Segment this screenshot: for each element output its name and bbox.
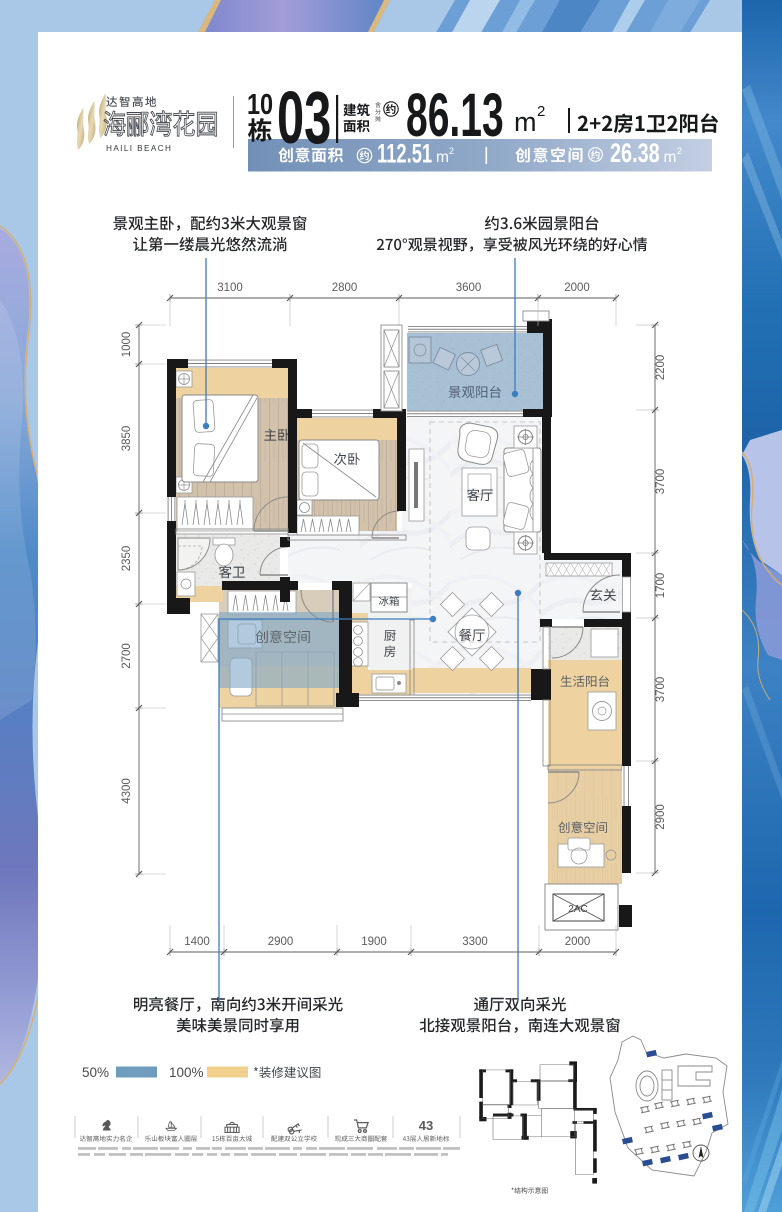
svg-text:2200: 2200 (655, 355, 667, 381)
svg-text:3700: 3700 (655, 469, 667, 495)
svg-text:03: 03 (277, 77, 331, 160)
svg-text:2800: 2800 (332, 282, 358, 294)
svg-text:112.51: 112.51 (377, 138, 432, 168)
svg-text:m: m (514, 107, 537, 137)
svg-text:2900: 2900 (268, 936, 294, 948)
svg-text:2: 2 (677, 146, 682, 156)
svg-text:m: m (664, 149, 677, 166)
svg-text:1400: 1400 (184, 936, 210, 948)
svg-text:2900: 2900 (655, 804, 667, 830)
svg-text:1700: 1700 (655, 573, 667, 599)
svg-text:3100: 3100 (217, 282, 243, 294)
svg-text:1900: 1900 (361, 936, 387, 948)
svg-text:1000: 1000 (121, 332, 133, 358)
svg-text:2000: 2000 (565, 936, 591, 948)
svg-text:50%: 50% (82, 1065, 109, 1080)
svg-text:3700: 3700 (655, 677, 667, 703)
svg-text:100%: 100% (169, 1065, 204, 1080)
svg-text:3600: 3600 (456, 282, 482, 294)
svg-text:43: 43 (419, 1118, 433, 1133)
svg-text:m: m (436, 149, 449, 166)
svg-text:4300: 4300 (121, 778, 133, 804)
svg-text:2700: 2700 (121, 643, 133, 669)
svg-text:10: 10 (247, 88, 273, 121)
svg-text:2: 2 (537, 103, 545, 120)
svg-text:HAILI BEACH: HAILI BEACH (106, 144, 172, 153)
svg-text:2350: 2350 (121, 546, 133, 572)
svg-text:3850: 3850 (121, 426, 133, 452)
svg-text:2AC: 2AC (568, 904, 587, 915)
svg-text:2000: 2000 (564, 282, 590, 294)
svg-text:2: 2 (449, 146, 454, 156)
svg-text:3300: 3300 (462, 936, 488, 948)
svg-text:26.38: 26.38 (610, 138, 660, 167)
